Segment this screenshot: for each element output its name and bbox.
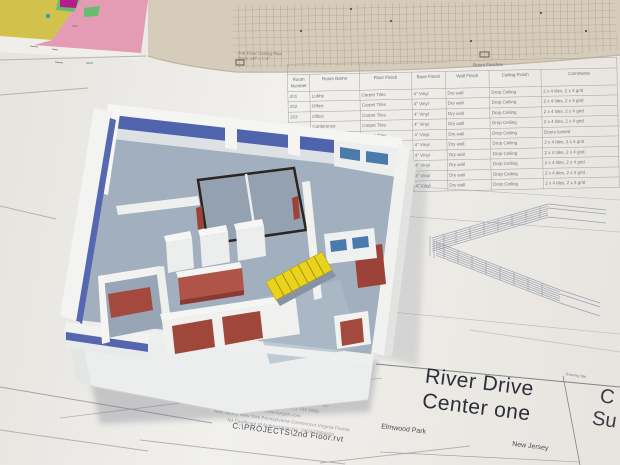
schedule-cell: Carpet Tiles [362,181,414,192]
schedule-cell: Dry wall [448,179,492,190]
model-interior-partitions [98,181,386,354]
schedule-cell: Room Name [309,73,359,91]
stair-elevation-drawing [392,186,620,334]
drawing-title-partial-1: C [598,385,616,410]
red-wall-panel [222,311,263,345]
yellow-stair-piece [266,252,336,306]
schedule-cell: Floor Finish [359,72,411,90]
drawing-title-partial-2: Su [591,407,618,433]
red-wall-panel [354,244,386,288]
schedule-cell: 207 [289,153,311,164]
schedule-cell: 4" Vinyl [413,139,447,150]
schedule-cell: 4" Vinyl [413,170,447,181]
schedule-cell: 208 [289,163,311,174]
schedule-cell: 210 [290,183,312,194]
schedule-cell: Comments [541,68,617,87]
schedule-cell: 206 [289,142,311,153]
schedule-cell: Base Finish [411,71,445,89]
schedule-cell: 203 [288,112,310,123]
schedule-cell: 4" Vinyl [412,88,446,99]
schedule-cell: 4" Vinyl [413,150,447,161]
photo-of-architectural-model-on-blueprints: 2nd Floor Ceiling Plan Scale: 1/8" = 1'-… [0,0,620,465]
schedule-cell: 4" Vinyl [413,160,447,171]
schedule-cell: 2 x 4 tiles, 2 x 4 grid [543,177,619,189]
schedule-cell: 201 [288,91,310,102]
drawing-title-label: Drawing Title [565,372,586,379]
schedule-cell: 4" Vinyl [412,109,446,120]
schedule-cell: 4" Vinyl [412,119,446,130]
schedule-cell: 4" Vinyl [412,98,446,109]
schedule-cell: Wall Finish [445,70,489,88]
window-pane [330,239,347,252]
schedule-cell: 4" Vinyl [414,180,448,191]
project-city: Elmwood Park [381,423,427,435]
window-pane [352,236,369,249]
red-wall-panel [172,319,215,354]
schedule-cell: 4" Vinyl [412,129,446,140]
project-title: River Drive Center one [396,360,561,429]
schedule-cell: 202 [288,101,310,112]
schedule-cell: 205 [289,132,311,143]
room-finish-schedule: Room FinishesRoom NumberRoom NameFloor F… [287,57,620,194]
project-state: New Jersey [512,441,549,452]
schedule-cell: Ceiling Finish [489,69,541,87]
colored-site-plan-drawing [0,0,148,63]
schedule-cell: Drop Ceiling [491,178,543,189]
schedule-cell: 204 [288,122,310,133]
schedule-cell: 209 [290,173,312,184]
red-wall-panel [178,268,244,300]
red-wall-panel [340,318,364,346]
red-wall-panel [108,287,153,318]
schedule-cell: Room Number [287,74,309,91]
schedule-cell: Office [312,182,362,193]
